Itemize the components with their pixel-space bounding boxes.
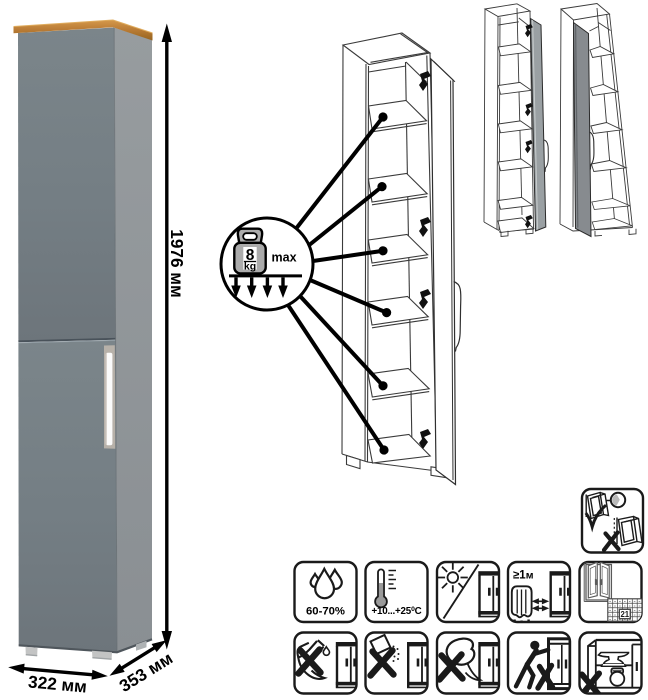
- svg-text:≥1м: ≥1м: [513, 570, 534, 582]
- svg-text:322 мм: 322 мм: [27, 671, 87, 696]
- svg-text:+10...+250C: +10...+250C: [371, 606, 421, 617]
- svg-text:kg: kg: [244, 261, 256, 273]
- svg-text:21: 21: [620, 610, 629, 619]
- svg-text:60-70%: 60-70%: [306, 606, 345, 618]
- svg-text:max: max: [272, 251, 297, 265]
- svg-text:1976 мм: 1976 мм: [167, 229, 187, 297]
